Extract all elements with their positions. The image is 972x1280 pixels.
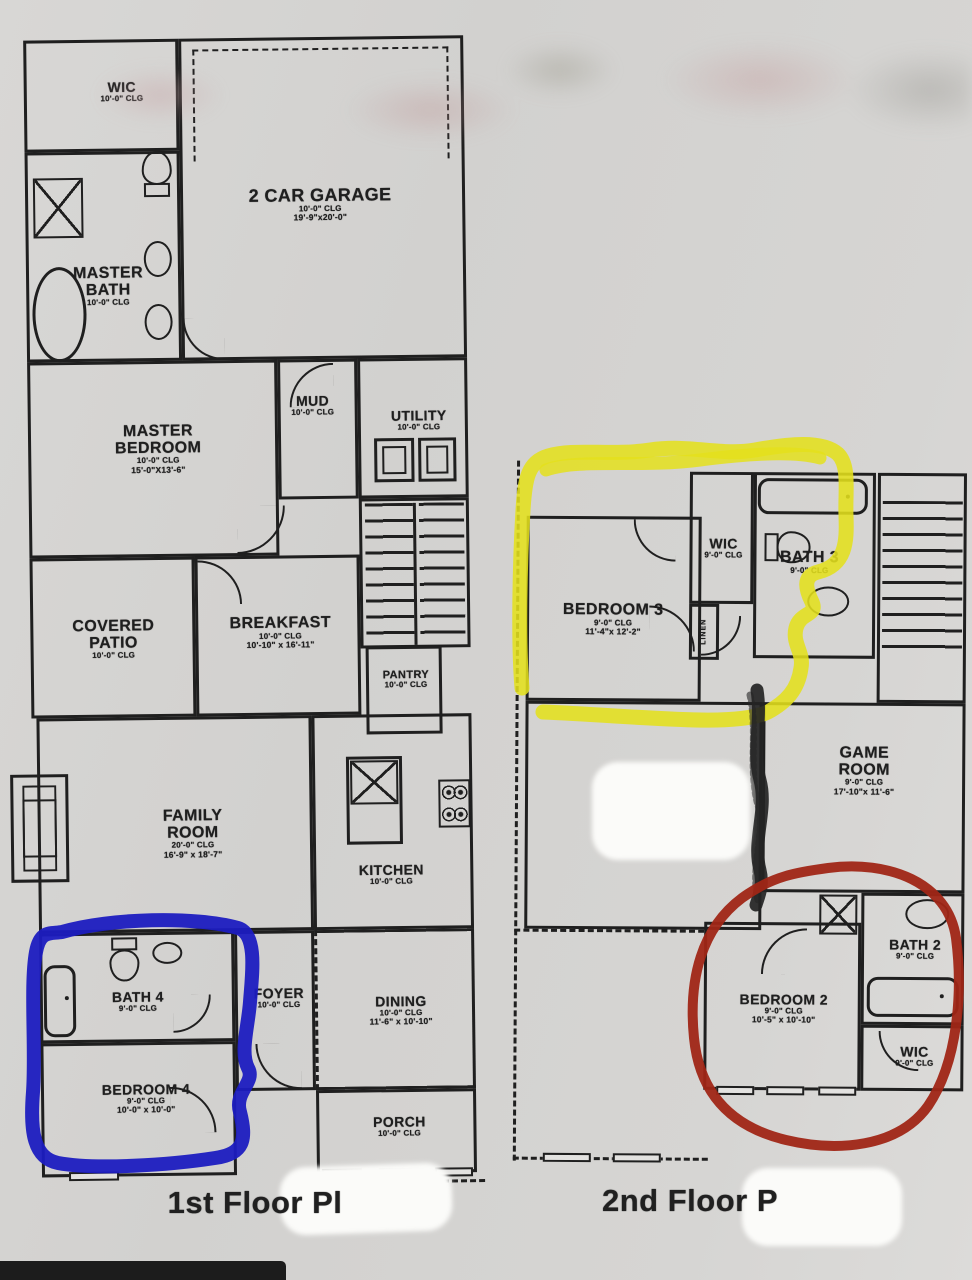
room-dims: 17'-10"x 11'-6" <box>834 787 895 796</box>
room-name: WIC <box>704 536 742 551</box>
window <box>716 1086 754 1095</box>
whiteout-blob <box>592 762 750 860</box>
sink <box>905 899 949 929</box>
room-clg: 9'-0" CLG <box>704 551 742 560</box>
room-clg: 9'-0" CLG <box>780 566 839 575</box>
bathtub <box>758 478 868 515</box>
scan-edge-bar <box>0 1261 286 1280</box>
dashed-boundary <box>513 461 520 1161</box>
label-bedroom-3: BEDROOM 3 9'-0" CLG 11'-4"x 12'-2" <box>563 602 664 636</box>
second-floor-caption: 2nd Floor P <box>602 1183 778 1219</box>
first-floor-caption: 1st Floor Pl <box>168 1185 343 1221</box>
sink <box>807 586 849 616</box>
room-name: BEDROOM 3 <box>563 602 664 619</box>
stairs <box>882 501 963 651</box>
label-game-room: GAME ROOM 9'-0" CLG 17'-10"x 11'-6" <box>834 745 895 796</box>
label-linen: LINEN <box>700 619 707 645</box>
room-name: WIC <box>895 1045 933 1060</box>
floorplan-scan: WIC 10'-0" CLG MASTER BATH 10'-0" CLG 2 … <box>0 0 972 1280</box>
room-name: GAME ROOM <box>834 745 895 779</box>
room-clg: 9'-0" CLG <box>889 952 941 961</box>
room-name: BATH 2 <box>889 937 941 952</box>
room-name: LINEN <box>700 619 707 645</box>
room-dims: 11'-4"x 12'-2" <box>563 627 664 636</box>
shower <box>819 894 857 934</box>
bathtub <box>867 977 959 1018</box>
room-name: BEDROOM 2 <box>740 992 828 1007</box>
label-bedroom-2: BEDROOM 2 9'-0" CLG 10'-5" x 10'-10" <box>739 992 828 1024</box>
window <box>818 1086 856 1095</box>
label-bath-2: BATH 2 9'-0" CLG <box>889 937 941 960</box>
window <box>543 1153 591 1162</box>
label-bath-3: BATH 3 9'-0" CLG <box>780 550 839 575</box>
label-wic-2: WIC 9'-0" CLG <box>895 1045 933 1068</box>
room-name: BATH 3 <box>780 550 839 567</box>
scan-smudges <box>0 0 972 140</box>
room-dims: 10'-5" x 10'-10" <box>739 1015 827 1024</box>
second-floor-plan: BEDROOM 3 9'-0" CLG 11'-4"x 12'-2" WIC 9… <box>0 0 972 1280</box>
window <box>613 1153 661 1162</box>
room-game-room <box>761 702 965 893</box>
room-clg: 9'-0" CLG <box>895 1059 933 1068</box>
window <box>766 1086 804 1095</box>
label-wic-3: WIC 9'-0" CLG <box>704 536 742 559</box>
